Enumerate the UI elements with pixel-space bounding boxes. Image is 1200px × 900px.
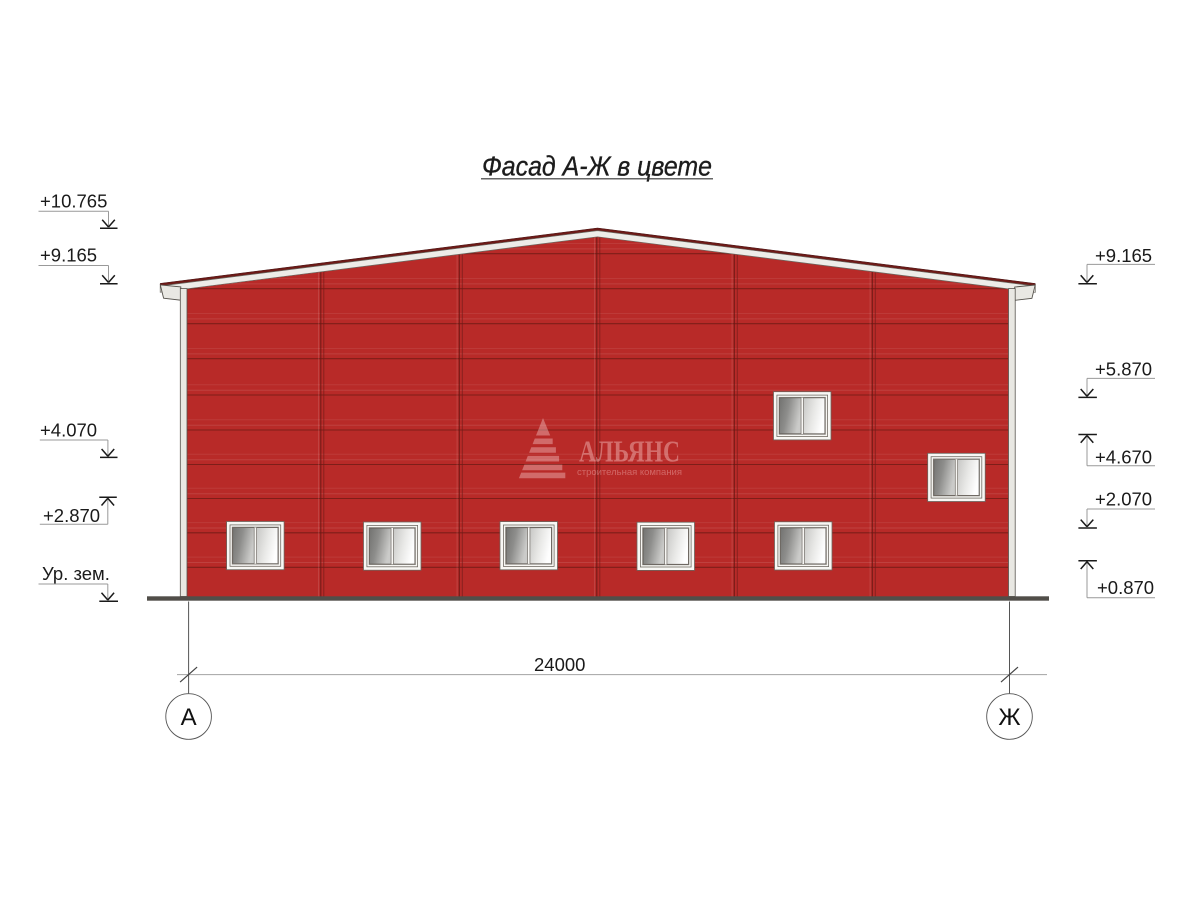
- svg-text:24000: 24000: [534, 654, 585, 675]
- svg-text:+0.870: +0.870: [1097, 577, 1154, 598]
- svg-text:+9.165: +9.165: [1095, 245, 1152, 266]
- svg-text:+2.070: +2.070: [1095, 489, 1152, 510]
- svg-text:+4.670: +4.670: [1095, 446, 1152, 467]
- svg-text:+4.070: +4.070: [40, 420, 97, 441]
- svg-text:+10.765: +10.765: [40, 191, 107, 212]
- svg-text:+5.870: +5.870: [1095, 358, 1152, 379]
- svg-text:Ур. зем.: Ур. зем.: [42, 563, 110, 584]
- svg-text:Ж: Ж: [998, 704, 1020, 731]
- svg-text:+2.870: +2.870: [43, 505, 100, 526]
- svg-text:АЛЬЯНС: АЛЬЯНС: [579, 434, 680, 469]
- svg-text:+9.165: +9.165: [40, 245, 97, 266]
- svg-text:строительная компания: строительная компания: [577, 467, 682, 478]
- svg-text:А: А: [181, 704, 197, 731]
- svg-text:Фасад А-Ж в цвете: Фасад А-Ж в цвете: [482, 151, 712, 182]
